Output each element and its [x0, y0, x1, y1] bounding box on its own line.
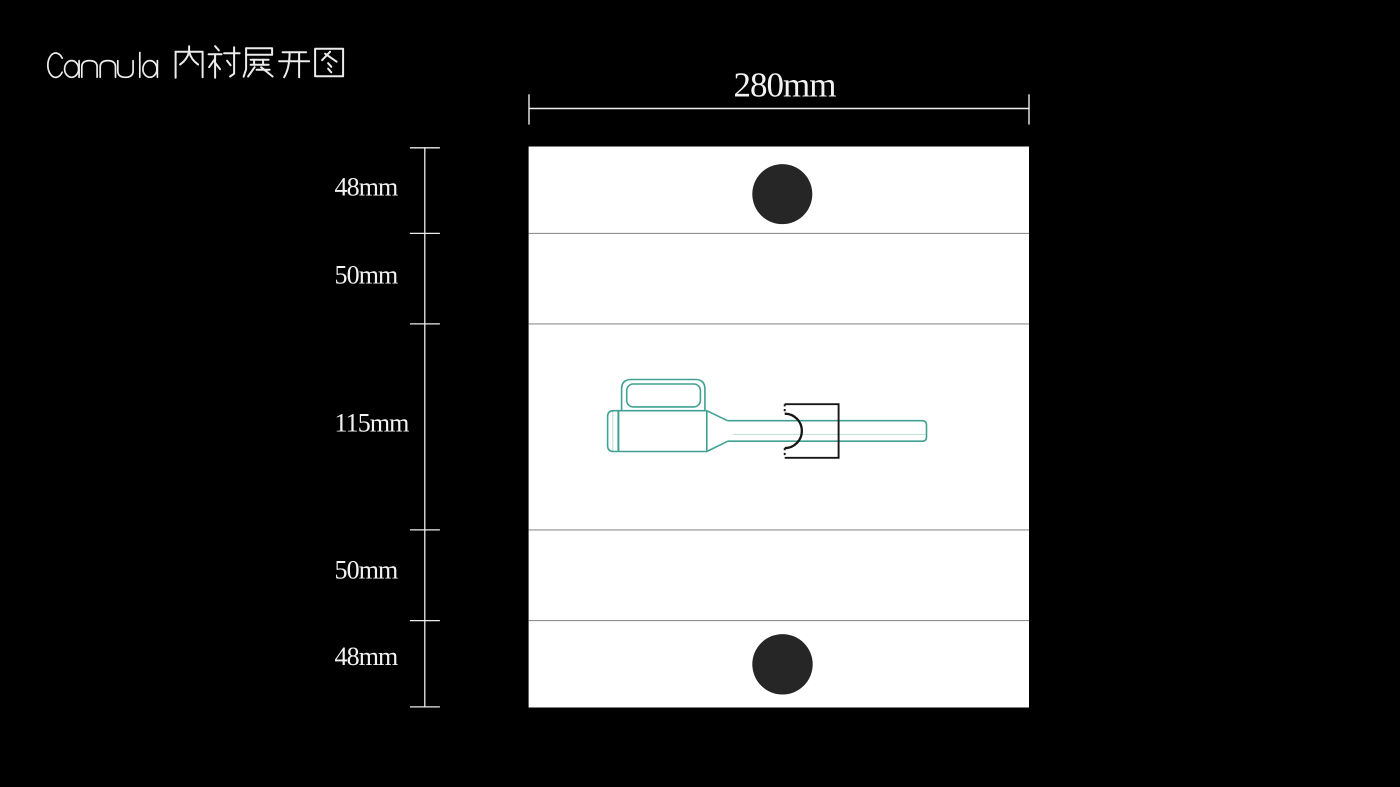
svg-text:48mm: 48mm	[335, 642, 399, 671]
svg-text:280mm: 280mm	[734, 66, 837, 105]
svg-text:50mm: 50mm	[335, 261, 399, 290]
svg-text:48mm: 48mm	[335, 173, 399, 202]
svg-text:50mm: 50mm	[335, 556, 399, 585]
svg-text:115mm: 115mm	[335, 409, 410, 438]
